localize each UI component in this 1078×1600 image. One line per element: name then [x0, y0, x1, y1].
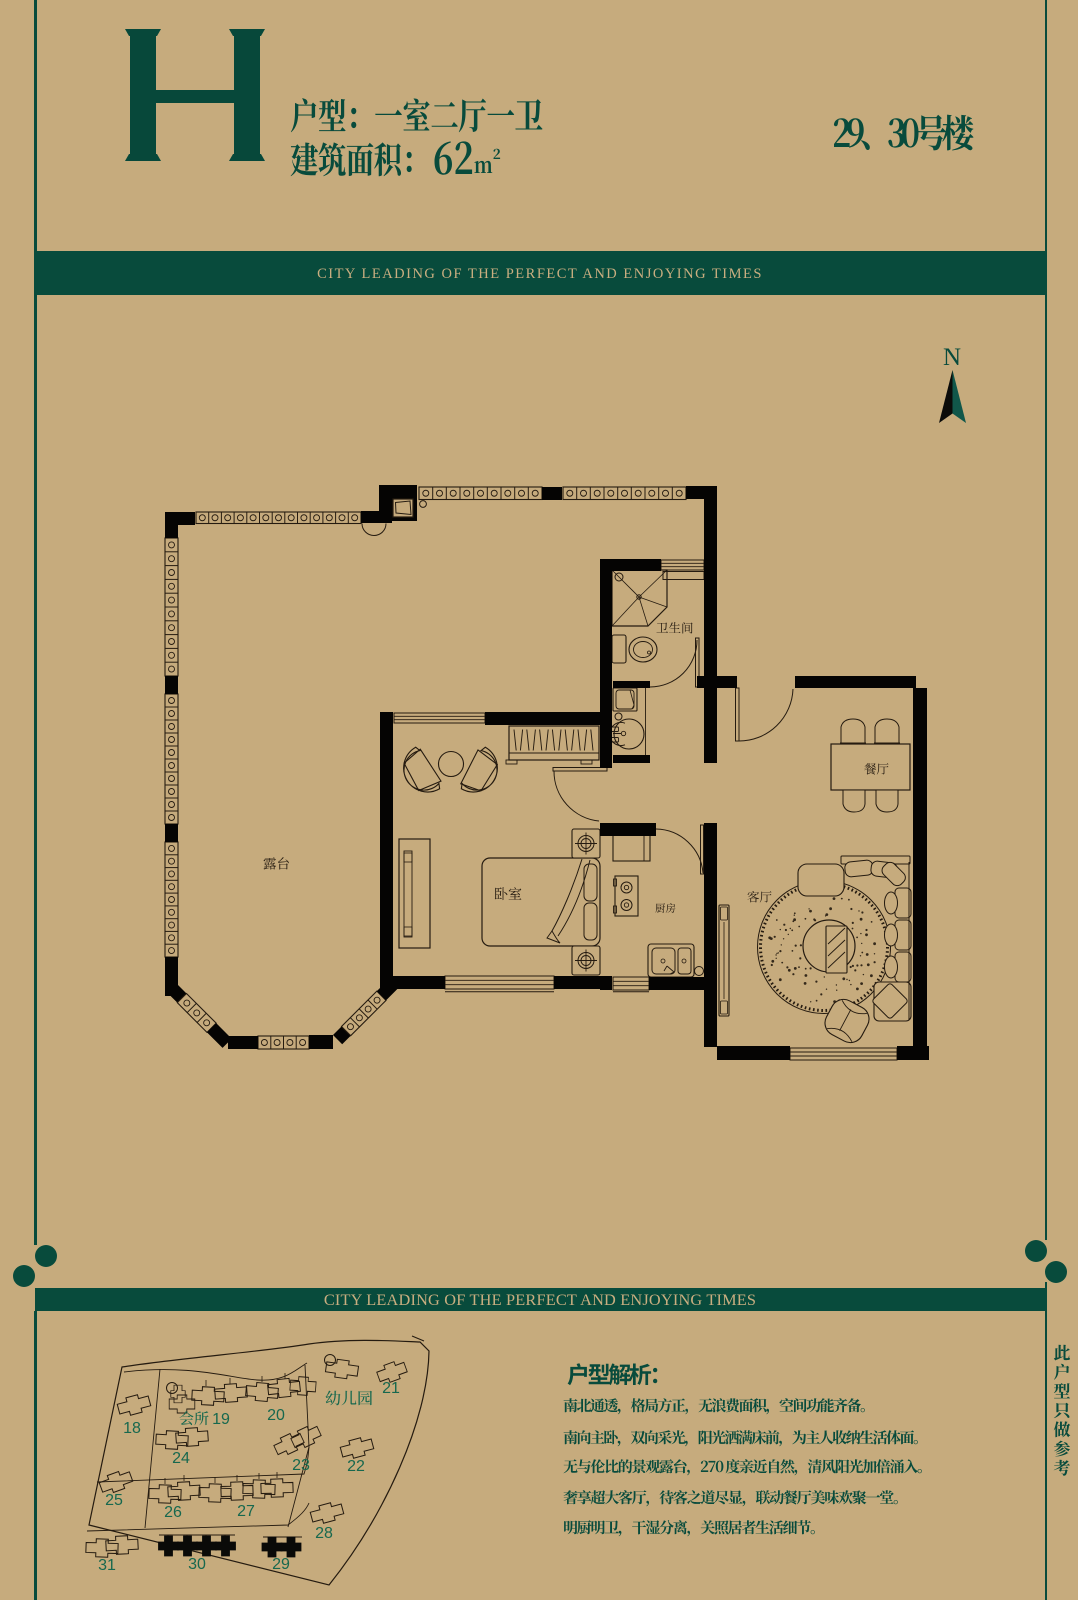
svg-text:28: 28 [315, 1525, 333, 1542]
svg-text:18: 18 [123, 1420, 141, 1437]
svg-text:24: 24 [172, 1450, 190, 1467]
svg-text:N: N [943, 344, 961, 371]
svg-text:29: 29 [272, 1556, 290, 1573]
svg-text:26: 26 [164, 1504, 182, 1521]
svg-text:27: 27 [237, 1503, 255, 1520]
svg-text:31: 31 [98, 1557, 116, 1574]
svg-text:19: 19 [212, 1411, 230, 1428]
svg-text:21: 21 [382, 1380, 400, 1397]
svg-text:22: 22 [347, 1458, 365, 1475]
svg-text:25: 25 [105, 1492, 123, 1509]
svg-text:23: 23 [292, 1457, 310, 1474]
svg-text:20: 20 [267, 1407, 285, 1424]
svg-text:30: 30 [188, 1556, 206, 1573]
